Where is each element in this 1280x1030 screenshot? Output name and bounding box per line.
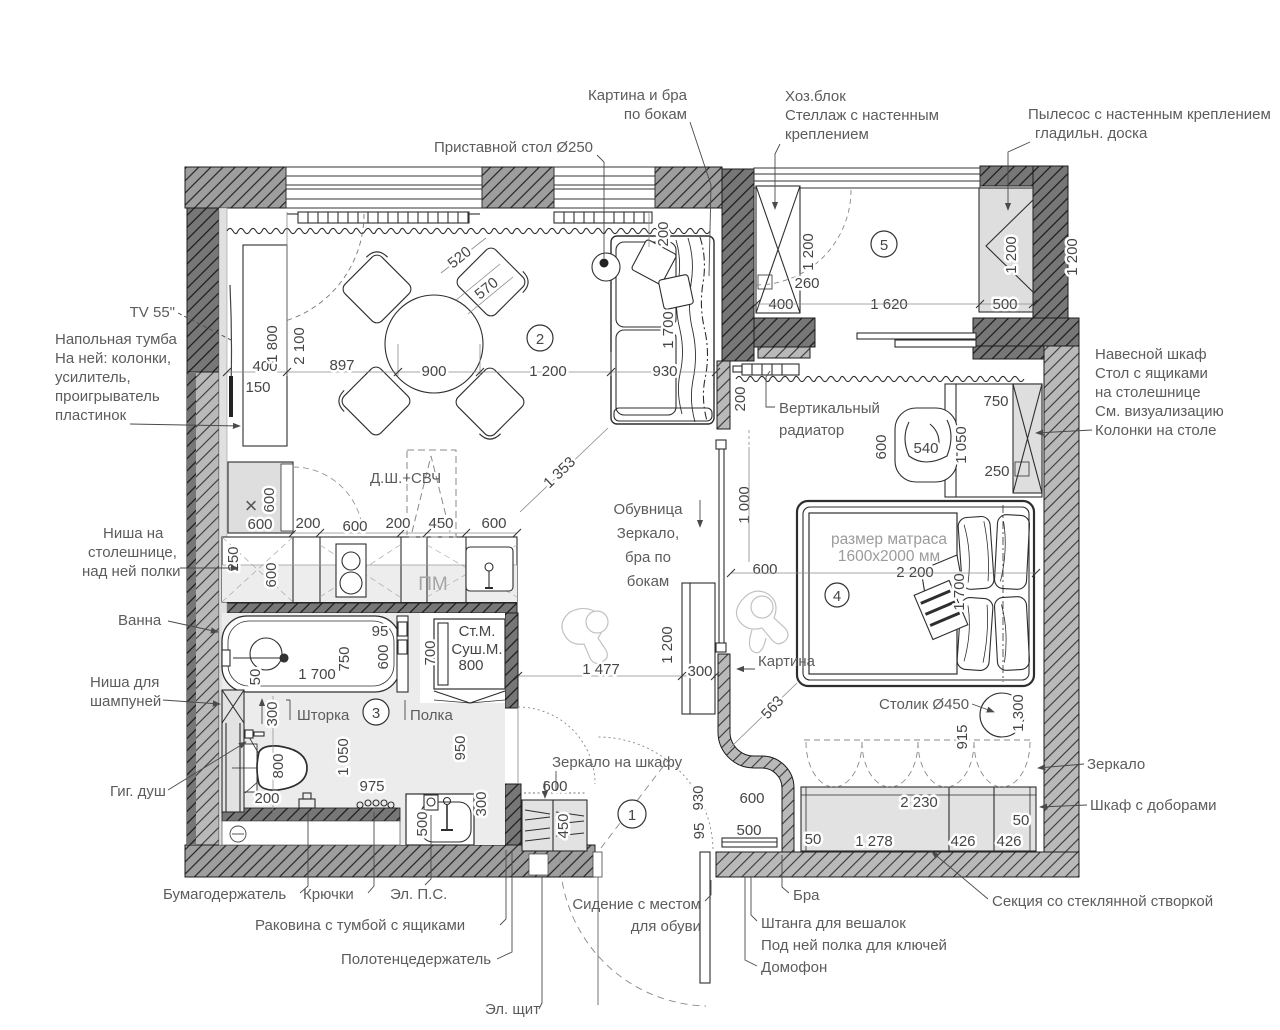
svg-text:столешнице,: столешнице, (88, 544, 177, 561)
svg-text:1 700: 1 700 (298, 666, 336, 683)
svg-text:426: 426 (996, 833, 1021, 850)
svg-text:300: 300 (687, 663, 712, 680)
svg-text:1600х2000 мм: 1600х2000 мм (838, 548, 940, 565)
svg-text:500: 500 (736, 822, 761, 839)
svg-text:Гиг. душ: Гиг. душ (110, 783, 166, 800)
svg-text:300: 300 (473, 791, 490, 816)
svg-text:Ниша для: Ниша для (90, 674, 159, 691)
svg-text:260: 260 (794, 275, 819, 292)
svg-text:1 200: 1 200 (1003, 236, 1020, 274)
svg-text:проигрыватель: проигрыватель (55, 388, 160, 405)
svg-text:креплением: креплением (785, 126, 869, 143)
svg-text:Полка: Полка (410, 707, 453, 724)
svg-text:1 050: 1 050 (953, 426, 970, 464)
svg-text:800: 800 (270, 753, 287, 778)
svg-text:600: 600 (261, 487, 278, 512)
svg-text:250: 250 (984, 463, 1009, 480)
svg-text:900: 900 (421, 363, 446, 380)
svg-text:Хоз.блок: Хоз.блок (785, 88, 846, 105)
svg-text:2: 2 (536, 331, 544, 348)
svg-text:95: 95 (691, 823, 708, 840)
svg-text:Под ней полка для ключей: Под ней полка для ключей (761, 937, 947, 954)
svg-text:Вертикальный: Вертикальный (779, 400, 880, 417)
svg-text:Полотенцедержатель: Полотенцедержатель (341, 951, 491, 968)
svg-text:бра по: бра по (625, 549, 671, 566)
svg-text:200: 200 (732, 386, 749, 411)
svg-text:450: 450 (428, 515, 453, 532)
svg-text:Бумагодержатель: Бумагодержатель (163, 886, 286, 903)
svg-text:См. визуализацию: См. визуализацию (1095, 403, 1224, 420)
svg-text:1 200: 1 200 (529, 363, 567, 380)
svg-text:Раковина с тумбой с ящиками: Раковина с тумбой с ящиками (255, 917, 465, 934)
svg-text:Шкаф с доборами: Шкаф с доборами (1090, 797, 1217, 814)
svg-text:1 477: 1 477 (582, 661, 620, 678)
svg-text:700: 700 (422, 640, 439, 665)
svg-text:шампуней: шампуней (90, 693, 161, 710)
svg-text:540: 540 (913, 440, 938, 457)
svg-text:600: 600 (247, 516, 272, 533)
svg-text:1 800: 1 800 (264, 325, 281, 363)
svg-text:1 700: 1 700 (660, 311, 677, 349)
svg-text:Ванна: Ванна (118, 612, 162, 629)
svg-text:5: 5 (880, 237, 888, 254)
svg-text:Зеркало,: Зеркало, (617, 525, 679, 542)
svg-text:4: 4 (833, 588, 841, 605)
svg-text:600: 600 (542, 778, 567, 795)
svg-text:50: 50 (805, 831, 822, 848)
svg-text:Суш.М.: Суш.М. (451, 641, 502, 658)
svg-text:1: 1 (628, 807, 636, 824)
svg-text:975: 975 (359, 778, 384, 795)
svg-text:по бокам: по бокам (624, 106, 687, 123)
svg-text:Штанга для вешалок: Штанга для вешалок (761, 915, 906, 932)
svg-text:гладильн. доска: гладильн. доска (1035, 125, 1148, 142)
svg-text:Д.Ш.+СВЧ: Д.Ш.+СВЧ (370, 470, 441, 487)
svg-text:1 278: 1 278 (855, 833, 893, 850)
svg-text:1 700: 1 700 (951, 573, 968, 611)
svg-text:для обуви: для обуви (631, 918, 701, 935)
svg-text:Крючки: Крючки (303, 886, 354, 903)
svg-text:радиатор: радиатор (779, 422, 844, 439)
svg-text:Обувница: Обувница (614, 501, 684, 518)
svg-text:1 200: 1 200 (1064, 238, 1081, 276)
svg-text:Пылесос с настенным креплением: Пылесос с настенным креплением (1028, 106, 1271, 123)
svg-text:426: 426 (950, 833, 975, 850)
svg-text:1 200: 1 200 (800, 233, 817, 271)
svg-text:150: 150 (245, 379, 270, 396)
svg-text:Шторка: Шторка (297, 707, 350, 724)
svg-text:Секция со стеклянной створкой: Секция со стеклянной створкой (992, 893, 1213, 910)
svg-text:TV 55": TV 55" (130, 304, 175, 321)
svg-text:600: 600 (752, 561, 777, 578)
svg-text:1 050: 1 050 (335, 738, 352, 776)
svg-text:450: 450 (555, 813, 572, 838)
svg-text:930: 930 (652, 363, 677, 380)
svg-text:Приставной стол Ø250: Приставной стол Ø250 (434, 139, 593, 156)
svg-text:200: 200 (385, 515, 410, 532)
svg-text:500: 500 (414, 811, 431, 836)
svg-text:Домофон: Домофон (761, 959, 827, 976)
svg-text:над ней полки: над ней полки (82, 563, 181, 580)
svg-text:Напольная тумба: Напольная тумба (55, 331, 178, 348)
svg-text:200: 200 (254, 790, 279, 807)
svg-text:95: 95 (372, 623, 389, 640)
svg-text:50: 50 (247, 669, 264, 686)
svg-text:бокам: бокам (627, 573, 669, 590)
svg-text:2 200: 2 200 (896, 564, 934, 581)
svg-text:Зеркало: Зеркало (1087, 756, 1145, 773)
svg-text:Ниша на: Ниша на (103, 525, 164, 542)
svg-text:×: × (245, 493, 258, 518)
svg-text:ПМ: ПМ (418, 574, 447, 595)
svg-text:600: 600 (739, 790, 764, 807)
svg-text:600: 600 (342, 518, 367, 535)
svg-text:Картина: Картина (758, 653, 816, 670)
svg-text:пластинок: пластинок (55, 407, 127, 424)
svg-text:Колонки на столе: Колонки на столе (1095, 422, 1217, 439)
svg-text:усилитель,: усилитель, (55, 369, 131, 386)
svg-text:Столик Ø450: Столик Ø450 (879, 696, 969, 713)
svg-text:1 353: 1 353 (540, 453, 579, 491)
svg-text:3: 3 (372, 705, 380, 722)
svg-text:750: 750 (983, 393, 1008, 410)
svg-text:Стол с ящиками: Стол с ящиками (1095, 365, 1208, 382)
svg-text:размер матраса: размер матраса (831, 531, 947, 548)
svg-text:Бра: Бра (793, 887, 820, 904)
svg-text:Зеркало на шкафу: Зеркало на шкафу (552, 754, 683, 771)
svg-text:600: 600 (375, 644, 392, 669)
svg-text:600: 600 (481, 515, 506, 532)
svg-text:915: 915 (954, 724, 971, 749)
svg-text:750: 750 (336, 646, 353, 671)
svg-text:50: 50 (1013, 812, 1030, 829)
svg-text:600: 600 (873, 434, 890, 459)
svg-text:930: 930 (690, 785, 707, 810)
svg-text:500: 500 (992, 296, 1017, 313)
svg-text:400: 400 (768, 296, 793, 313)
svg-text:1 200: 1 200 (659, 626, 676, 664)
svg-text:2 100: 2 100 (291, 327, 308, 365)
svg-text:600: 600 (263, 562, 280, 587)
svg-text:1 620: 1 620 (870, 296, 908, 313)
svg-text:1 300: 1 300 (1010, 694, 1027, 732)
svg-text:Ст.М.: Ст.М. (459, 623, 496, 640)
svg-text:200: 200 (655, 221, 672, 246)
svg-text:Эл. П.С.: Эл. П.С. (390, 886, 447, 903)
svg-text:800: 800 (458, 657, 483, 674)
svg-text:897: 897 (329, 357, 354, 374)
svg-text:Сидение с местом: Сидение с местом (572, 896, 701, 913)
svg-text:На ней: колонки,: На ней: колонки, (55, 350, 171, 367)
svg-text:Навесной шкаф: Навесной шкаф (1095, 346, 1207, 363)
svg-text:300: 300 (264, 701, 281, 726)
svg-text:Картина и бра: Картина и бра (588, 87, 688, 104)
svg-text:950: 950 (452, 735, 469, 760)
svg-text:на столешнице: на столешнице (1095, 384, 1201, 401)
svg-text:Эл. щит: Эл. щит (485, 1001, 540, 1018)
svg-text:Стеллаж с настенным: Стеллаж с настенным (785, 107, 939, 124)
svg-text:200: 200 (295, 515, 320, 532)
svg-text:1 000: 1 000 (736, 486, 753, 524)
svg-text:2 230: 2 230 (900, 794, 938, 811)
